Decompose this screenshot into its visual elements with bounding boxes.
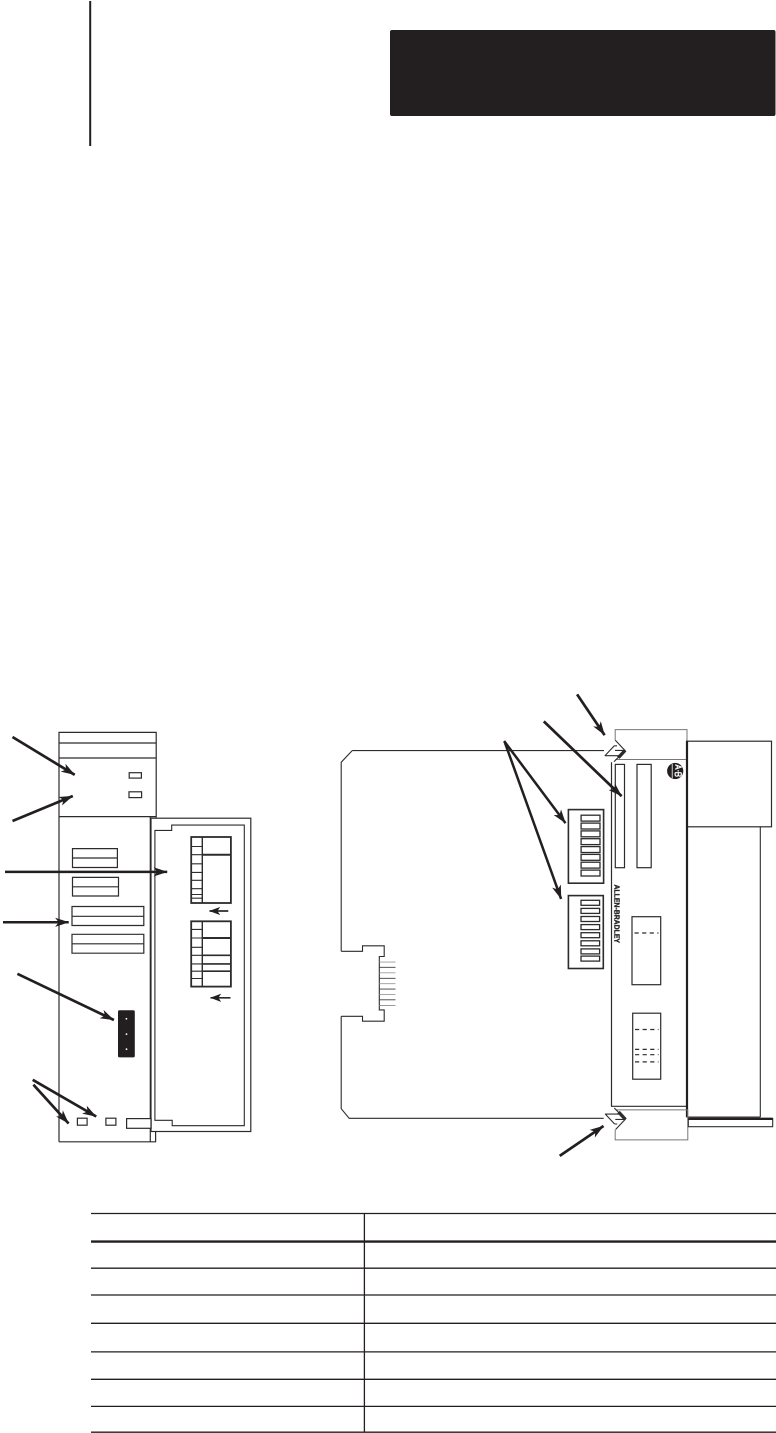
- svg-text:ALLEN-BRADLEY: ALLEN-BRADLEY: [612, 885, 621, 944]
